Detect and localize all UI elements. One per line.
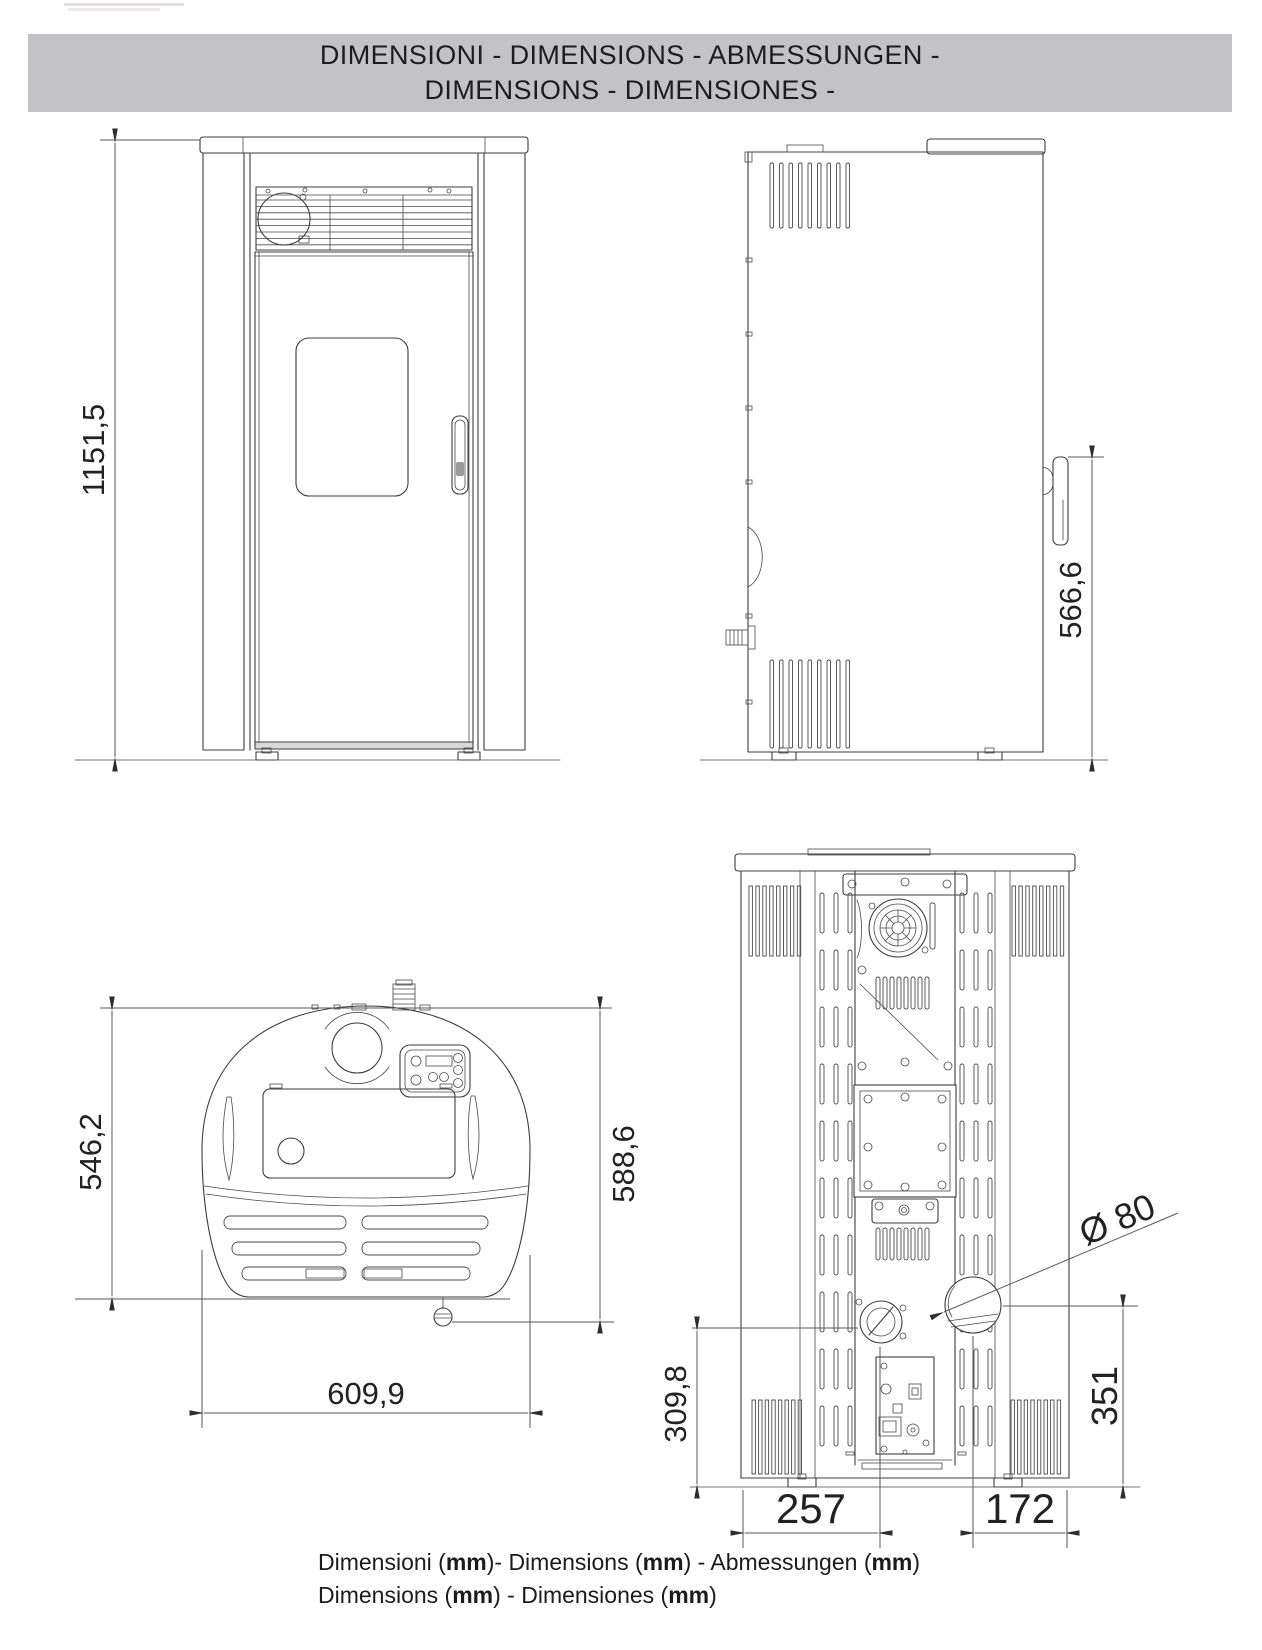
side-door-handle	[1043, 457, 1068, 545]
lid-knob	[278, 1138, 304, 1164]
side-handle-height-dimension: 566,6	[1053, 457, 1104, 757]
rear-access-plate	[854, 1085, 956, 1197]
footer-line-1: Dimensioni (mm)- Dimensions (mm) - Abmes…	[318, 1546, 920, 1579]
side-pipe-fitting	[726, 626, 755, 649]
front-top-cap	[200, 137, 528, 153]
side-lower-vents	[770, 660, 850, 748]
side-handle-height-label: 566,6	[1053, 561, 1088, 639]
top-width-dimension: 609,9	[202, 1250, 530, 1428]
top-flue-collar	[325, 1012, 389, 1083]
door-window	[296, 338, 408, 496]
control-panel-display	[426, 1056, 452, 1066]
front-left-panel	[203, 153, 244, 750]
manual-page: DIMENSIONI - DIMENSIONS - ABMESSUNGEN - …	[0, 0, 1262, 1650]
rear-lower-left-vent	[752, 1400, 802, 1474]
top-body-outline	[202, 1006, 530, 1297]
side-door-bump	[748, 527, 762, 587]
front-door	[255, 252, 473, 749]
side-feet	[772, 748, 1002, 760]
rear-electrical-panel	[876, 1357, 934, 1454]
top-front-grille	[204, 1186, 528, 1280]
front-air-grille	[256, 187, 472, 250]
rear-upper-right-vent	[1012, 886, 1064, 956]
front-view-drawing	[75, 137, 560, 760]
side-view-drawing	[700, 139, 1108, 760]
front-height-dimension: 1151,5	[76, 140, 200, 757]
top-width-label: 609,9	[327, 1376, 405, 1411]
top-handle-knob	[434, 1297, 452, 1326]
top-depth-dimensions: 546,2 588,6	[73, 1008, 641, 1322]
front-feet	[256, 748, 480, 760]
footer-line-2: Dimensions (mm) - Dimensiones (mm)	[318, 1579, 920, 1612]
rear-flue-outlet	[945, 1277, 1001, 1333]
rear-air-inlet	[856, 1299, 906, 1343]
rear-center-panel	[843, 874, 967, 1469]
top-hopper-lid	[263, 1084, 455, 1178]
rear-inlet-height-dimension: 309,8	[658, 1328, 858, 1484]
front-height-label: 1151,5	[76, 404, 111, 497]
rear-fan	[869, 899, 927, 957]
rear-inlet-height-label: 309,8	[658, 1365, 693, 1443]
rear-flue-height-label: 351	[1084, 1366, 1125, 1426]
rear-lower-right-vent	[1011, 1400, 1061, 1474]
technical-drawing: 1151,5	[0, 0, 1262, 1650]
footer-caption: Dimensioni (mm)- Dimensions (mm) - Abmes…	[318, 1546, 920, 1612]
rear-top-cap	[735, 854, 1075, 871]
rear-view-drawing	[690, 849, 1140, 1487]
rear-flue-offset-label: 172	[985, 1485, 1055, 1532]
top-left-side-vent	[223, 1097, 234, 1180]
rear-upper-left-vent	[749, 886, 801, 956]
top-body-depth-label: 546,2	[73, 1113, 108, 1191]
top-view-drawing	[202, 980, 530, 1326]
front-right-panel	[484, 153, 525, 750]
rear-flue-height-dimension: 351	[1003, 1306, 1138, 1484]
side-upper-vents	[770, 163, 850, 228]
door-handle	[452, 416, 468, 494]
rear-flue-diameter-label: Ø 80	[1073, 1185, 1161, 1253]
top-right-side-vent	[468, 1096, 479, 1179]
top-total-depth-label: 588,6	[606, 1125, 641, 1203]
rear-inlet-offset-label: 257	[776, 1485, 846, 1532]
